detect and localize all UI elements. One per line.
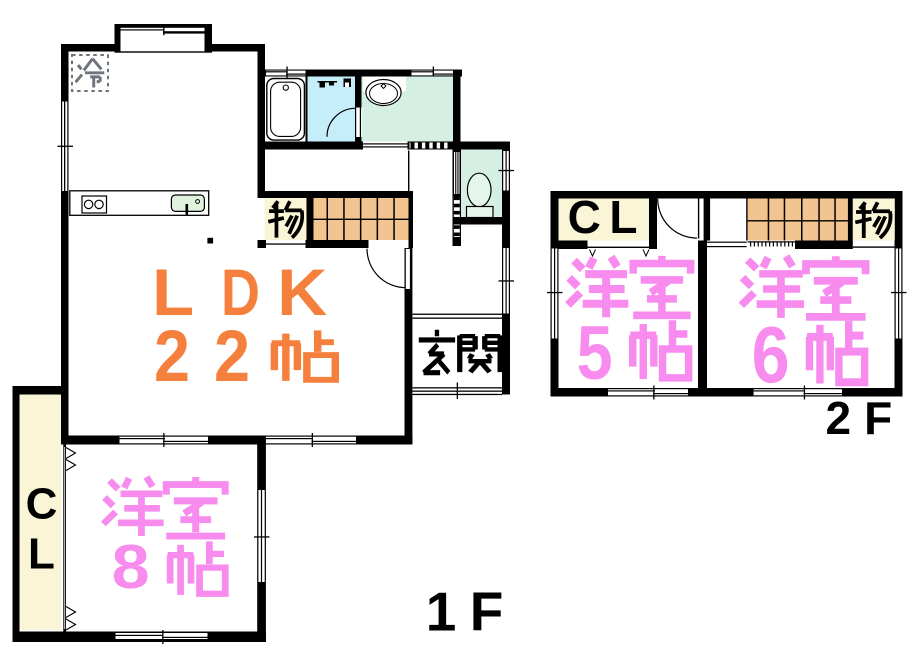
svg-text:2: 2: [214, 316, 250, 397]
svg-text:F: F: [470, 581, 504, 643]
svg-text:5: 5: [577, 311, 613, 396]
svg-text:K: K: [277, 255, 327, 329]
svg-text:C: C: [568, 191, 601, 243]
svg-text:F: F: [864, 392, 892, 444]
svg-text:2: 2: [154, 316, 190, 397]
svg-text:L: L: [28, 530, 55, 579]
svg-text:8: 8: [112, 533, 150, 602]
svg-text:L: L: [609, 191, 637, 243]
svg-text:6: 6: [752, 310, 790, 399]
svg-text:2: 2: [826, 392, 852, 444]
svg-text:C: C: [26, 479, 58, 528]
svg-text:1: 1: [426, 581, 457, 643]
